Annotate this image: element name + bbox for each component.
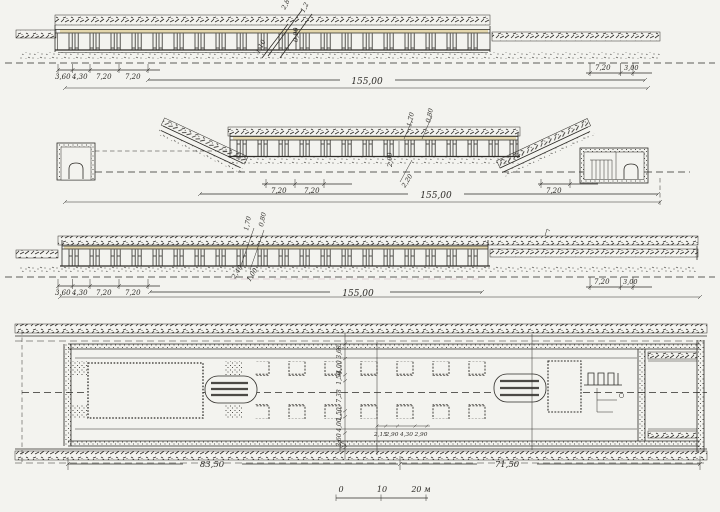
section-1-longitudinal: 2,8 1,2 0,90 1,10 3,60 4,30 7,20 7,20 15… (5, 0, 715, 90)
dim-label: 7,20 (96, 73, 112, 81)
overall-line (58, 295, 702, 299)
subgrade-hatch (20, 52, 660, 59)
colonnade (57, 34, 488, 50)
dim-label: 4,30 (399, 432, 413, 438)
dim-label: 3,60 (336, 345, 343, 359)
scale-label: 0 (338, 485, 343, 494)
dim-label: 3,00 (623, 278, 637, 286)
colonnade (64, 250, 488, 266)
callout-label: 0,90 (292, 28, 300, 42)
dim-label: 1,50 (336, 371, 343, 385)
scale-label: 10 (377, 485, 387, 494)
dim-label-total: 155,00 (351, 77, 383, 87)
callout-label: 2,20 (399, 173, 414, 190)
dim-label: 3,60 (336, 433, 343, 447)
dim-label: 83,50 (200, 460, 225, 470)
dim-label-total: 155,00 (342, 289, 374, 299)
drawing-sheet: 2,8 1,2 0,90 1,10 3,60 4,30 7,20 7,20 15… (0, 0, 720, 512)
dim-label: 4,00 (336, 418, 343, 433)
outer-wall-bottom (15, 451, 707, 460)
ground-hatch-right (492, 32, 660, 41)
callout-label: 1,70 (405, 112, 416, 128)
dim-label: 3,00 (624, 64, 638, 72)
dim-label: 4,30 (71, 289, 88, 297)
dim-label: 2,90 (414, 432, 428, 438)
fixture (619, 393, 624, 398)
section-mark (545, 229, 550, 236)
scale-bar: 0 10 20 м (336, 485, 431, 501)
ground-hatch-left (16, 30, 56, 38)
overall-line (63, 200, 662, 204)
callout-label: 0,80 (257, 212, 268, 228)
column-row-bottom (255, 404, 493, 419)
colonnade (232, 140, 518, 156)
dim-label-total: 155,00 (420, 191, 452, 201)
dim-label: 7,20 (125, 289, 141, 297)
station-plan: 3,60 4,00 1,50 7,38 1,50 4,00 3,60 2,15 … (15, 324, 707, 470)
callout-label: 0,80 (424, 108, 435, 124)
metro-station-drawing: 2,8 1,2 0,90 1,10 3,60 4,30 7,20 7,20 15… (0, 0, 720, 512)
ground-hatch (58, 236, 698, 245)
pier (225, 404, 242, 419)
dim-label: 71,50 (495, 460, 520, 470)
roof-slab-tint (60, 30, 488, 34)
pier (225, 361, 242, 376)
ground-hatch (55, 15, 490, 25)
scale-label: 20 м (410, 485, 431, 494)
dim-label: 7,20 (594, 278, 610, 286)
callout-label: 1,70 (242, 216, 253, 232)
dim-label: 7,38 (336, 389, 343, 403)
dim-label: 3,60 (55, 73, 71, 81)
column-row-top (255, 361, 493, 376)
ground-hatch (228, 127, 520, 136)
dim-label: 4,30 (71, 73, 88, 81)
dim-label: 7,20 (96, 289, 112, 297)
callout-label: 1,2 (299, 1, 311, 14)
dim-label: 7,20 (595, 64, 611, 72)
dim-label: 2,90 (385, 432, 399, 438)
section-3-longitudinal: 1,70 0,80 2,40 1,00 3,60 4,30 7,20 7,20 … (5, 212, 715, 299)
ticket-hall-left (88, 363, 203, 418)
pier (72, 404, 87, 419)
dim-label: 7,20 (125, 73, 141, 81)
service-room (548, 361, 581, 412)
section-2-longitudinal-inclines: 1,70 0,80 2,00 2,20 7,20 7,20 7,20 155,0… (57, 108, 690, 206)
turnstile-row (584, 373, 622, 385)
callout-label: 2,8 (279, 0, 291, 12)
dim-label: 3,60 (55, 289, 71, 297)
outer-wall-top (15, 324, 707, 333)
callout-label: 2,00 (386, 153, 394, 168)
pier (72, 361, 87, 376)
